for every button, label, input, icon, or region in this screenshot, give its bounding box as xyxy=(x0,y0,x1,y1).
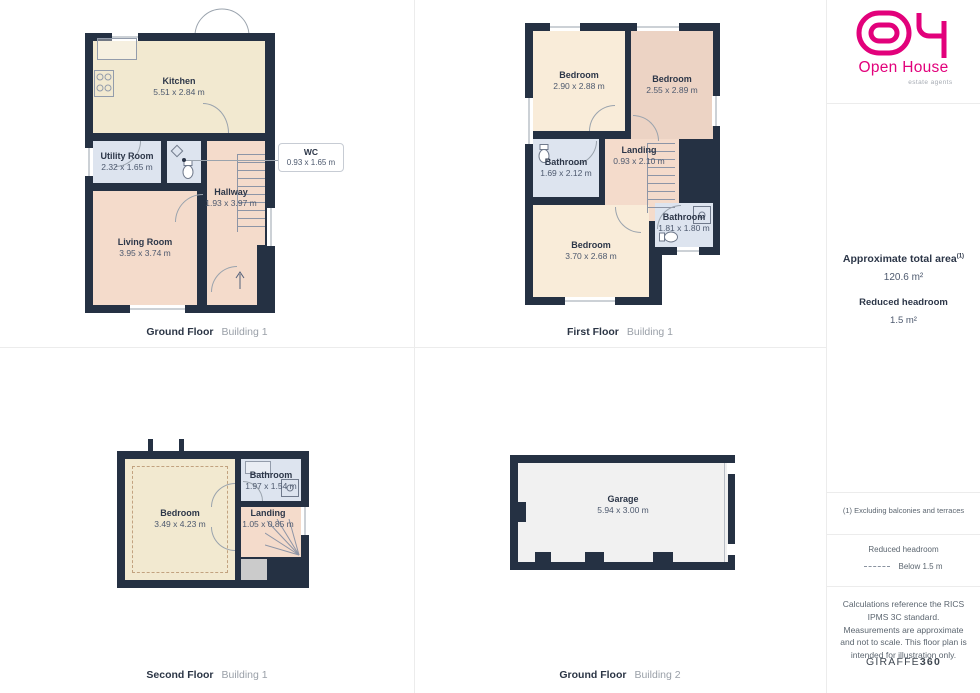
garage-door-line xyxy=(724,463,725,562)
headroom-title: Reduced headroom xyxy=(827,297,980,308)
wc-callout: WC 0.93 x 1.65 m xyxy=(278,143,344,172)
caption-floor: Second Floor xyxy=(146,669,213,681)
wc-diamond-fixture xyxy=(169,143,185,159)
headroom-value: 1.5 m² xyxy=(827,315,980,326)
plan-first-floor-building1: Bedroom 2.90 x 2.88 m Bedroom 2.55 x 2.8… xyxy=(525,8,725,313)
double-door-icon xyxy=(193,8,251,35)
room-label-hallway: Hallway 1.93 x 3.97 m xyxy=(205,186,257,210)
caption-building: Building 1 xyxy=(627,326,673,338)
wall xyxy=(179,439,184,451)
room-name: Living Room xyxy=(118,236,173,248)
room-dims: 0.93 x 1.65 m xyxy=(285,158,337,168)
room-name: Kitchen xyxy=(153,75,205,87)
room-name: Bathroom xyxy=(658,211,710,223)
room-name: Landing xyxy=(613,144,665,156)
legend-label: Below 1.5 m xyxy=(898,562,942,571)
caption-floor: Ground Floor xyxy=(559,669,626,681)
room-label-bathroom-a: Bathroom 1.69 x 2.12 m xyxy=(540,156,592,180)
agency-logo: Open House estate agents xyxy=(827,10,980,86)
room-label-living: Living Room 3.95 x 3.74 m xyxy=(118,236,173,260)
wall-opening xyxy=(727,463,735,474)
room-dims: 1.05 x 0.85 m xyxy=(242,519,294,530)
plan-ground-floor-building1: Kitchen 5.51 x 2.84 m Utility Room 2.32 … xyxy=(85,8,347,326)
window xyxy=(712,96,720,126)
room-dims: 2.55 x 2.89 m xyxy=(646,85,698,96)
room-label-bedroom-a: Bedroom 2.90 x 2.88 m xyxy=(553,69,605,93)
room-name: Utility Room xyxy=(101,150,154,162)
room-name: Bedroom xyxy=(646,73,698,85)
caption-floor: First Floor xyxy=(567,326,619,338)
area-value: 120.6 m² xyxy=(827,272,980,283)
room-dims: 2.32 x 1.65 m xyxy=(101,162,154,173)
room-dims: 3.70 x 2.68 m xyxy=(565,251,617,262)
caption-ground-floor-building1: Ground FloorBuilding 1 xyxy=(0,326,414,338)
room-dims: 5.51 x 2.84 m xyxy=(153,87,205,98)
room-name: Garage xyxy=(597,493,649,505)
room-label-bedroom: Bedroom 3.49 x 4.23 m xyxy=(154,507,206,531)
giraffe360-brand: GIRAFFE360 xyxy=(827,656,980,668)
room-label-bedroom-b: Bedroom 2.55 x 2.89 m xyxy=(646,73,698,97)
brand-name: Open House xyxy=(827,59,980,77)
room-label-landing: Landing 0.93 x 2.10 m xyxy=(613,144,665,168)
toilet-fixture xyxy=(181,160,195,180)
room-dims: 1.93 x 3.97 m xyxy=(205,198,257,209)
floorplan-sheet: Kitchen 5.51 x 2.84 m Utility Room 2.32 … xyxy=(0,0,980,693)
wall-pier xyxy=(535,552,551,562)
wall xyxy=(148,439,153,451)
footnote: (1) Excluding balconies and terraces xyxy=(827,506,980,515)
room-label-landing: Landing 1.05 x 0.85 m xyxy=(242,507,294,531)
window xyxy=(637,23,679,31)
room-name: Hallway xyxy=(205,186,257,198)
void-area xyxy=(241,559,267,580)
caption-ground-floor-building2: Ground FloorBuilding 2 xyxy=(414,669,826,681)
window xyxy=(301,507,309,535)
window xyxy=(525,98,533,144)
sink-counter-fixture xyxy=(97,38,137,60)
window xyxy=(565,297,615,305)
window xyxy=(677,247,699,255)
room-name: Bedroom xyxy=(553,69,605,81)
room-name: Bathroom xyxy=(540,156,592,168)
sidebar-divider xyxy=(827,492,980,493)
room-name: WC xyxy=(285,147,337,158)
sidebar: Open House estate agents Approximate tot… xyxy=(826,0,980,693)
room-label-bathroom: Bathroom 1.97 x 1.54 m xyxy=(245,469,297,493)
wall-pier xyxy=(585,552,604,562)
caption-floor: Ground Floor xyxy=(146,326,213,338)
footprint-notch xyxy=(662,255,725,310)
legend-title: Reduced headroom xyxy=(827,545,980,554)
entrance-arrow-icon xyxy=(235,270,245,290)
open-house-logo-icon xyxy=(856,10,952,58)
wall-pier xyxy=(518,502,526,522)
room-dims: 5.94 x 3.00 m xyxy=(597,505,649,516)
room-dims: 2.90 x 2.88 m xyxy=(553,81,605,92)
dashed-line-swatch xyxy=(864,566,890,567)
plan-ground-floor-building2: Garage 5.94 x 3.00 m xyxy=(508,448,744,580)
plan-second-floor-building1: Bedroom 3.49 x 4.23 m Bathroom 1.97 x 1.… xyxy=(117,437,313,595)
room-label-bedroom-c: Bedroom 3.70 x 2.68 m xyxy=(565,239,617,263)
room-dims: 1.97 x 1.54 m xyxy=(245,481,297,492)
wall-opening xyxy=(727,544,735,555)
window xyxy=(550,23,580,31)
room-label-kitchen: Kitchen 5.51 x 2.84 m xyxy=(153,75,205,99)
disclaimer-text: Calculations reference the RICS IPMS 3C … xyxy=(827,598,980,662)
area-title: Approximate total area(1) xyxy=(827,253,980,265)
caption-building: Building 1 xyxy=(221,326,267,338)
room-label-bathroom-b: Bathroom 1.81 x 1.80 m xyxy=(658,211,710,235)
room-dims: 1.69 x 2.12 m xyxy=(540,168,592,179)
room-dims: 3.49 x 4.23 m xyxy=(154,519,206,530)
brand-footer-bold: 360 xyxy=(920,656,941,668)
sidebar-divider xyxy=(827,103,980,104)
legend-row: Below 1.5 m xyxy=(827,562,980,571)
window xyxy=(130,305,185,313)
caption-second-floor-building1: Second FloorBuilding 1 xyxy=(0,669,414,681)
area-footnote-marker: (1) xyxy=(957,254,964,260)
room-name: Landing xyxy=(242,507,294,519)
room-name: Bathroom xyxy=(245,469,297,481)
caption-first-floor-building1: First FloorBuilding 1 xyxy=(414,326,826,338)
room-label-utility: Utility Room 2.32 x 1.65 m xyxy=(101,150,154,174)
horizontal-divider xyxy=(0,347,826,348)
room-name: Bedroom xyxy=(565,239,617,251)
room-name: Bedroom xyxy=(154,507,206,519)
sidebar-divider xyxy=(827,534,980,535)
caption-building: Building 2 xyxy=(634,669,680,681)
room-dims: 1.81 x 1.80 m xyxy=(658,223,710,234)
room-dims: 0.93 x 2.10 m xyxy=(613,156,665,167)
caption-building: Building 1 xyxy=(221,669,267,681)
brand-tagline: estate agents xyxy=(855,79,953,86)
area-summary: Approximate total area(1) 120.6 m² Reduc… xyxy=(827,253,980,326)
window xyxy=(267,208,275,246)
callout-leader-line xyxy=(186,160,278,161)
room-label-garage: Garage 5.94 x 3.00 m xyxy=(597,493,649,517)
wall-pier xyxy=(653,552,673,562)
stove-fixture xyxy=(94,70,114,97)
window xyxy=(85,148,93,176)
brand-footer-regular: GIRAFFE xyxy=(866,656,920,668)
sidebar-divider xyxy=(827,586,980,587)
room-dims: 3.95 x 3.74 m xyxy=(118,248,173,259)
area-title-text: Approximate total area xyxy=(843,253,957,265)
